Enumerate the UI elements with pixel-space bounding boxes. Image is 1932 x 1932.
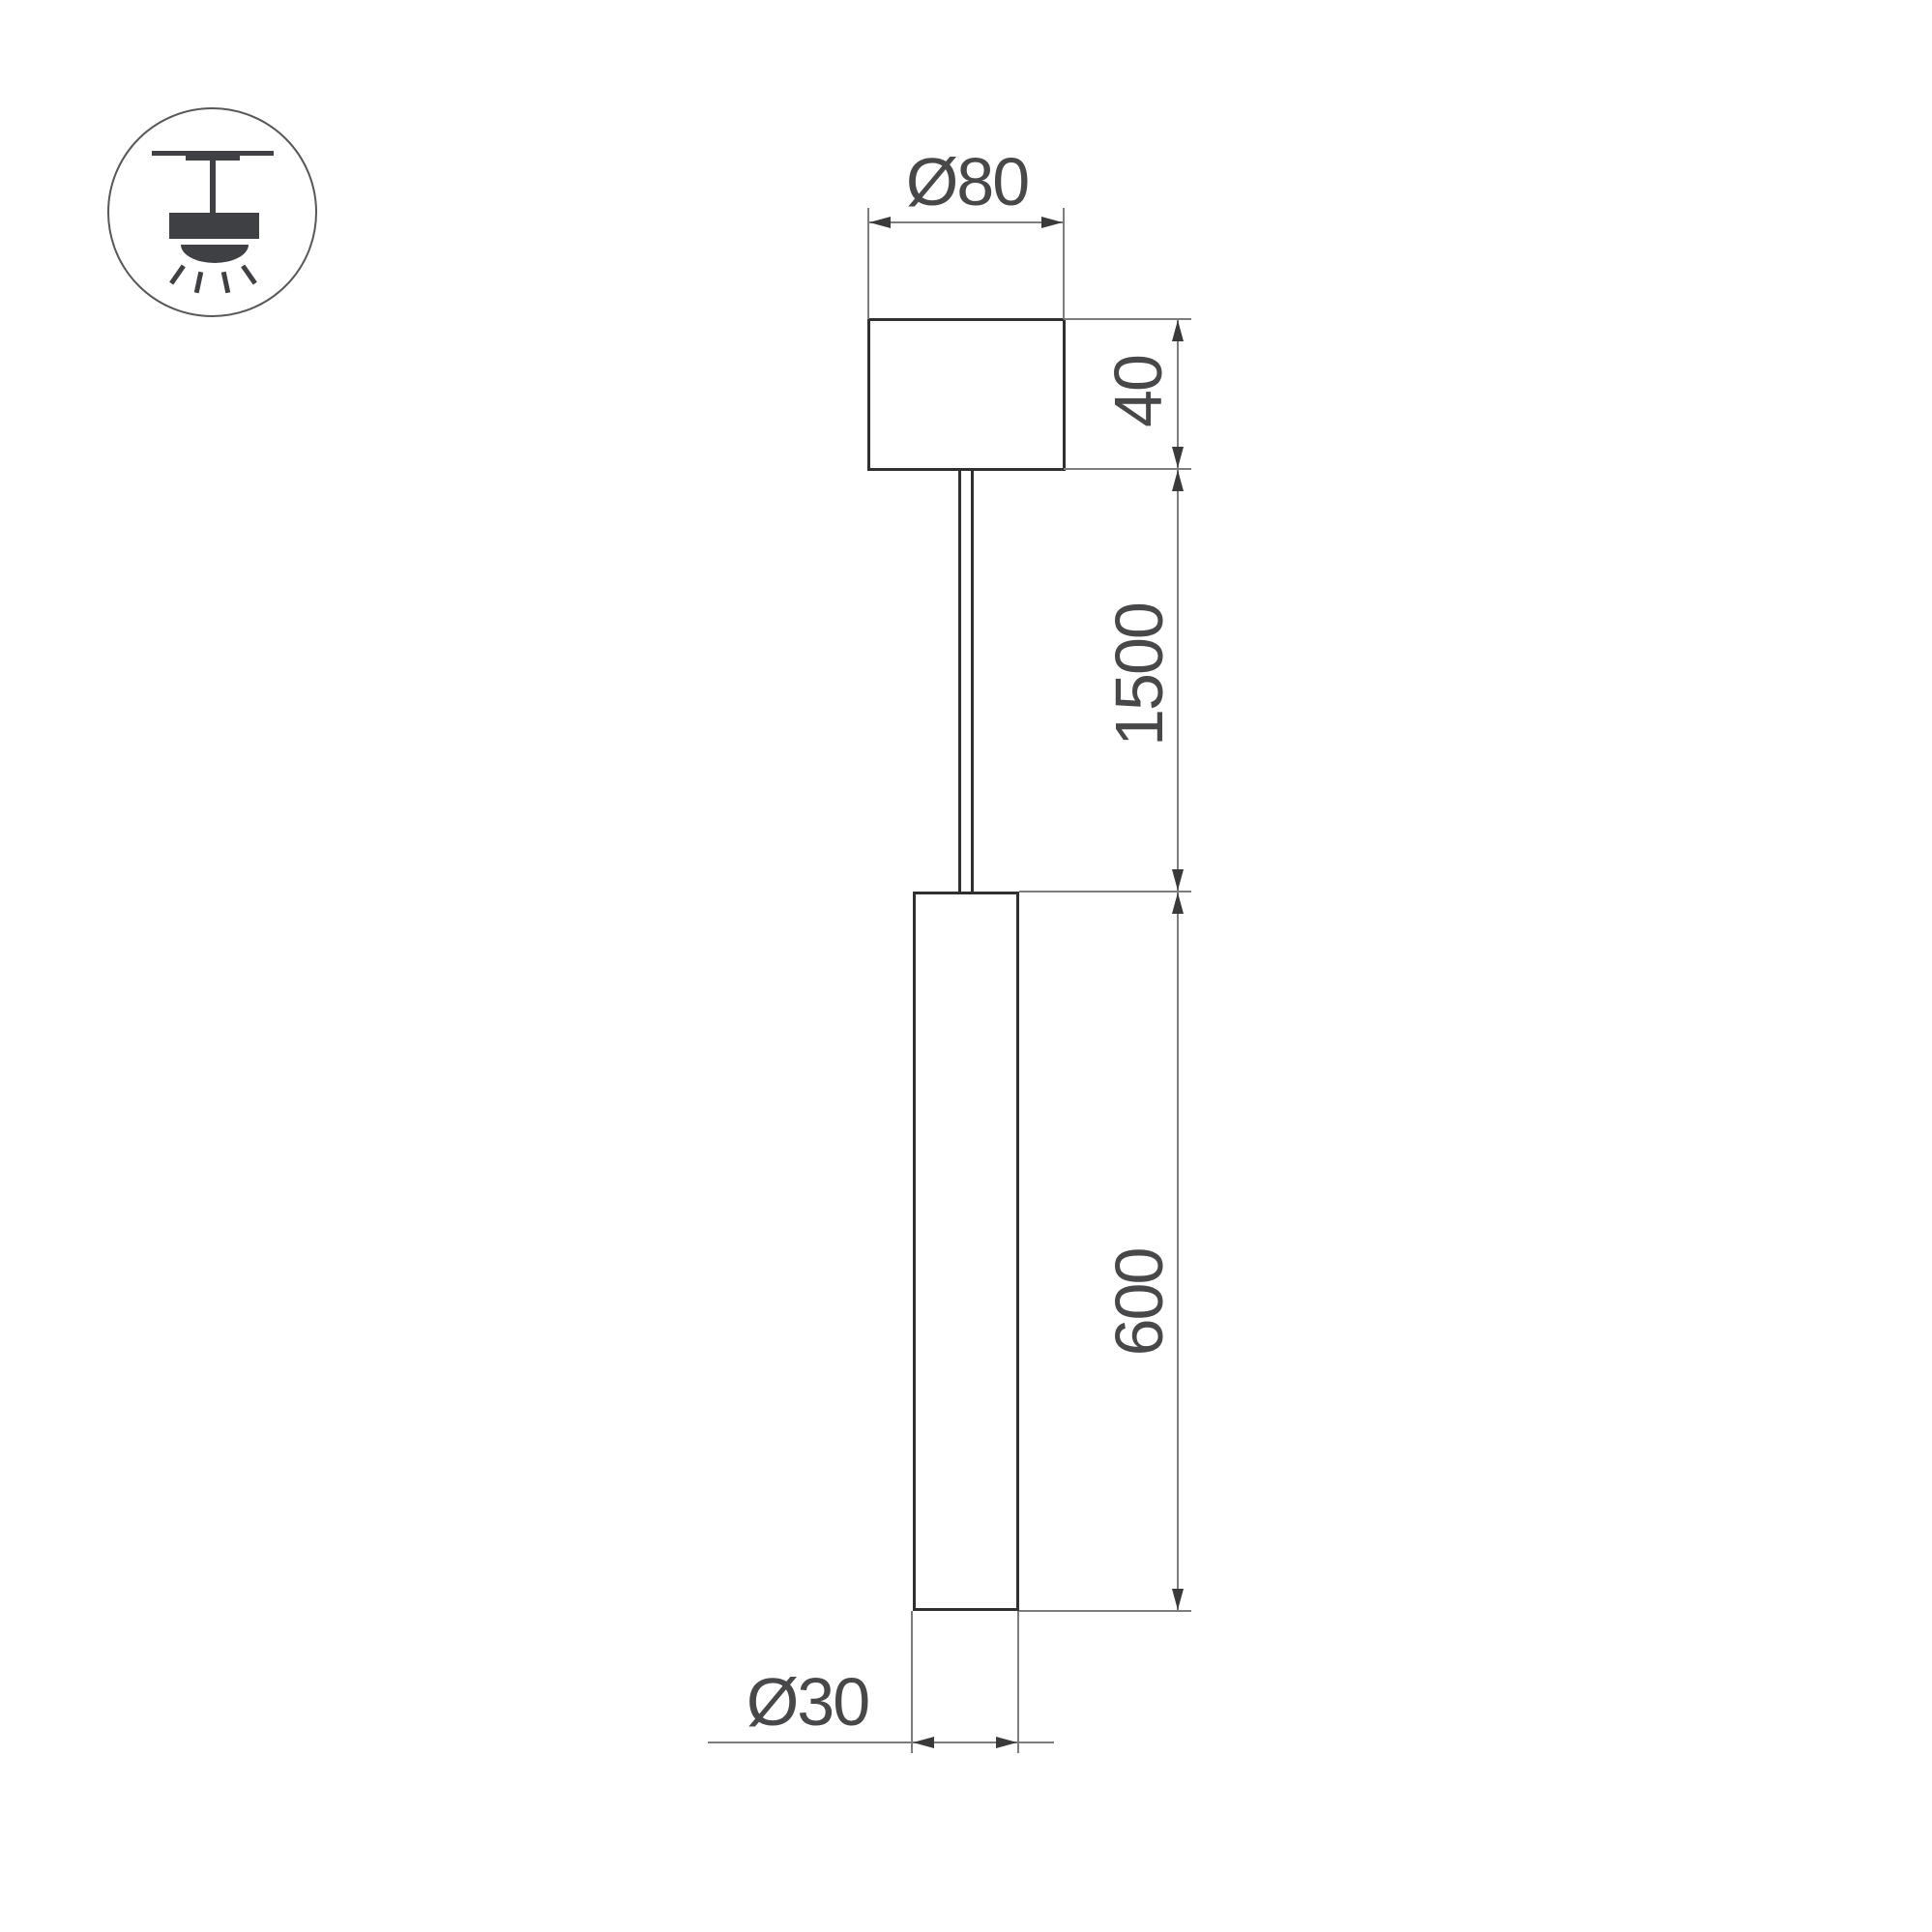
dimension-line [868, 221, 1064, 223]
suspension-wire [958, 469, 974, 892]
dim-label-suspension-length: 1500 [1103, 549, 1175, 801]
extension-line [1019, 1610, 1191, 1612]
dim-label-tube-length: 600 [1103, 1206, 1175, 1399]
dimension-line [1177, 469, 1179, 892]
drawing-canvas: Ø80 40 1500 600 Ø30 [0, 0, 1932, 1932]
canopy-outline [867, 318, 1066, 471]
pendant-lamp-icon [107, 107, 317, 317]
dim-arrow-down-icon [1172, 1589, 1184, 1610]
extension-line [1017, 1611, 1019, 1753]
dim-arrow-up-icon [1172, 893, 1184, 914]
extension-line [1063, 208, 1065, 319]
extension-line [1019, 891, 1191, 893]
dim-label-canopy-diameter: Ø80 [870, 146, 1064, 218]
dim-arrow-right-icon [996, 1737, 1017, 1748]
dim-arrow-down-icon [1172, 869, 1184, 891]
dim-arrow-right-icon [1041, 217, 1063, 228]
lamp-body-icon [169, 213, 259, 239]
tube-outline [913, 892, 1019, 1611]
dimension-line [1177, 892, 1179, 1611]
dim-arrow-up-icon [1172, 470, 1184, 491]
stem-icon [210, 160, 216, 215]
dim-arrow-left-icon [869, 217, 891, 228]
dim-label-canopy-height: 40 [1102, 319, 1174, 464]
dim-arrow-left-icon [913, 1737, 934, 1748]
dim-label-tube-diameter: Ø30 [701, 1666, 914, 1738]
